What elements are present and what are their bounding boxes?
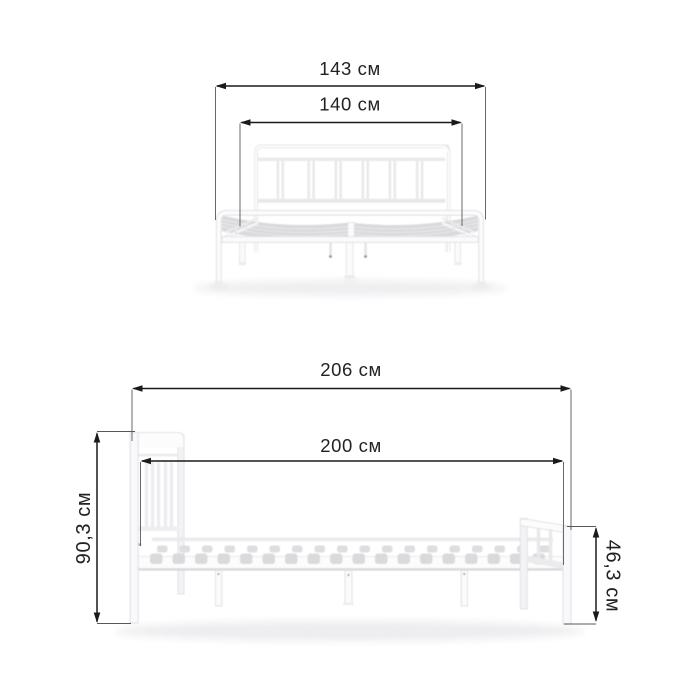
svg-text:206 см: 206 см — [320, 359, 382, 380]
svg-text:143 см: 143 см — [319, 58, 381, 79]
svg-text:46,3 см: 46,3 см — [602, 540, 624, 612]
svg-text:200 см: 200 см — [320, 435, 382, 456]
svg-text:140 см: 140 см — [319, 94, 381, 115]
svg-text:90,3 см: 90,3 см — [73, 492, 95, 564]
